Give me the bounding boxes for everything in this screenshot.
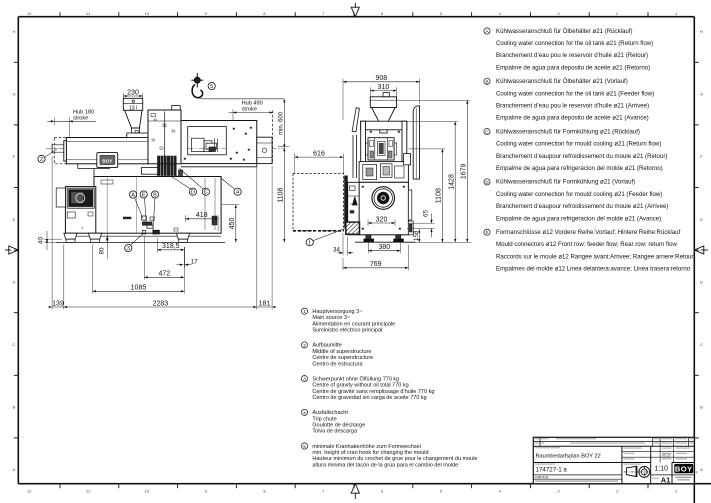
svg-text:181: 181 [259,300,271,307]
svg-text:Tolva de descarga: Tolva de descarga [312,429,358,435]
svg-text:450: 450 [229,218,236,230]
svg-text:Goulotte de décharge: Goulotte de décharge [312,423,365,429]
svg-text:310: 310 [378,84,390,91]
svg-text:318,5: 318,5 [162,243,180,250]
svg-text:C: C [13,342,16,347]
svg-text:altura minima del tacón de la: altura minima del tacón de la grúa para … [312,462,458,468]
svg-text:B: B [485,79,488,84]
svg-text:Schwerpunkt ohne Ölfüllung 770: Schwerpunkt ohne Ölfüllung 770 kg [312,375,399,382]
svg-text:Cooling water connection for m: Cooling water connection for mould cooli… [496,191,662,198]
svg-text:05.20: 05.20 [662,454,671,458]
svg-text:Empalme de agua para deposito: Empalme de agua para deposito de aceite … [496,64,650,71]
svg-text:Trip chute: Trip chute [312,416,336,422]
svg-text:380: 380 [379,244,391,251]
svg-text:C: C [700,342,703,347]
svg-text:Formanschlüsse ø12 Vordere Rei: Formanschlüsse ø12 Vordere Reihe:Vorlauf… [496,229,681,236]
svg-text:Kühlwasseranschluß für Formküh: Kühlwasseranschluß für Formkühlung ø21 (… [496,128,640,135]
svg-text:D: D [13,279,16,284]
svg-text:H: H [13,29,16,34]
svg-text:B: B [700,405,703,410]
svg-text:min. 600: min. 600 [279,111,285,135]
svg-text:Main source 3~: Main source 3~ [312,315,350,321]
svg-text:A: A [13,467,16,472]
svg-text:3: 3 [303,377,306,382]
svg-text:616: 616 [313,151,325,158]
svg-text:minimale Kranhakenhöhe zum For: minimale Kranhakenhöhe zum Formwechsel [312,444,421,450]
svg-text:Ausfallschacht: Ausfallschacht [312,410,348,416]
svg-text:1679: 1679 [461,163,468,179]
svg-text:17: 17 [191,259,198,266]
svg-text:5: 5 [210,84,213,90]
svg-text:Suministro eléctrico principal: Suministro eléctrico principal [312,328,382,334]
svg-text:Centre of gravity without oil: Centre of gravity without oil total 770 … [312,383,408,389]
svg-text:Branchement d’eaupour refroidi: Branchement d’eaupour refroidissement du… [496,203,668,210]
svg-text:Empalme de agua para deposito: Empalme de agua para deposito de aceite … [496,115,649,122]
svg-text:stroke: stroke [73,116,88,122]
svg-text:B: B [13,405,16,410]
svg-text:40: 40 [38,237,45,244]
svg-text:320: 320 [376,216,388,223]
svg-text:Alimentation en courant princi: Alimentation en courant principale [312,321,395,327]
svg-text:Hub 180: Hub 180 [73,110,94,116]
svg-text:174727-1 a: 174727-1 a [536,466,568,473]
svg-text:Hauptversorgung 3~: Hauptversorgung 3~ [312,309,362,315]
svg-text:Centro de gravedad sin carga d: Centro de gravedad sin carga de aceite 7… [312,395,426,401]
svg-text:Raccords sur le moule ø12 Rang: Raccords sur le moule ø12 Rangee avant:A… [496,253,693,260]
svg-text:230: 230 [127,89,139,96]
svg-text:472: 472 [159,271,171,278]
svg-text:E: E [700,217,703,222]
svg-text:1085: 1085 [131,285,147,292]
svg-text:Kühlwasseranschluß für Formküh: Kühlwasseranschluß für Formkühlung ø21 (… [496,179,635,186]
svg-text:A: A [700,467,703,472]
svg-text:BOY: BOY [675,465,693,474]
svg-text:Centre de superstructure: Centre de superstructure [312,355,373,361]
svg-text:Hauteur minimum du crochet de: Hauteur minimum du crochet de grue pour … [312,456,477,462]
svg-text:2283: 2283 [153,300,169,307]
svg-text:908: 908 [376,75,388,82]
svg-text:139: 139 [52,300,64,307]
svg-text:1: 1 [303,309,306,314]
svg-text:Kühlwasseranschluß für Ölbehäl: Kühlwasseranschluß für Ölbehälter ø21 (V… [496,78,628,85]
svg-text:Branchement d’eau pou le reser: Branchement d’eau pou le reservoir d’hui… [496,52,648,59]
svg-text:Empalmes del molde ø12 Linea d: Empalmes del molde ø12 Linea delantera:a… [496,266,691,273]
svg-text:4: 4 [303,410,306,415]
svg-text:BOY: BOY [102,158,112,163]
svg-text:A1: A1 [661,475,670,484]
svg-text:2: 2 [303,343,306,348]
svg-text:34: 34 [333,247,340,254]
svg-text:Cooling water connection for t: Cooling water connection for the oil tan… [496,40,653,47]
svg-text:Empalme de agua para refrigera: Empalme de agua para refrigeracion del m… [496,165,663,172]
svg-text:1: 1 [308,240,311,246]
svg-text:A: A [131,193,135,199]
svg-text:418: 418 [196,212,208,219]
svg-text:Cooling water connection for t: Cooling water connection for the oil tan… [496,90,654,97]
svg-text:769: 769 [370,261,382,268]
svg-text:Branchement d’eau pou le reser: Branchement d’eau pou le reservoir d’hui… [496,103,649,110]
svg-text:Centro de estructura: Centro de estructura [312,361,363,367]
svg-text:2: 2 [40,157,43,163]
svg-text:Branchement d’eaupour refroidi: Branchement d’eaupour refroidissement du… [496,153,667,160]
svg-text:5: 5 [303,444,306,449]
svg-text:min. height of cran hook for c: min. height of cran hook for changing th… [312,450,428,456]
svg-text:12: 12 [27,489,32,494]
svg-text:C: C [204,190,208,196]
svg-text:Aufbaumitte: Aufbaumitte [312,343,341,349]
svg-text:Centre de gravité sans remplis: Centre de gravité sans remplissage d’hui… [312,389,434,395]
svg-text:65: 65 [422,210,429,217]
svg-text:158: 158 [413,230,420,241]
svg-text:4: 4 [236,190,239,196]
svg-text:E: E [142,193,146,199]
svg-text:10: 10 [145,489,150,494]
svg-text:Middle of superstructure: Middle of superstructure [312,349,371,355]
svg-text:Raumbedarfsplan BOY 22: Raumbedarfsplan BOY 22 [536,453,601,459]
svg-text:D: D [191,190,195,196]
svg-text:1428: 1428 [448,174,455,190]
svg-text:Empalme de agua para refrigera: Empalme de agua para refrigeracion del m… [496,215,661,222]
svg-text:3: 3 [127,246,130,252]
svg-text:KRF/DA: KRF/DA [535,475,549,479]
svg-text:+: + [81,225,84,230]
svg-text:D: D [700,279,703,284]
svg-text:10: 10 [145,11,150,16]
svg-text:Kühlwasseranschluß für Ölbehäl: Kühlwasseranschluß für Ölbehälter ø21 (R… [496,28,633,35]
svg-text:1108: 1108 [436,188,443,203]
svg-text:Hub 490: Hub 490 [242,100,263,106]
svg-text:12: 12 [27,11,32,16]
svg-text:G: G [12,92,15,97]
svg-text:E: E [13,217,16,222]
svg-text:80: 80 [98,247,105,254]
svg-text:B: B [153,193,157,199]
svg-text:E: E [485,230,488,235]
svg-text:1:10: 1:10 [654,466,668,473]
svg-text:Cooling water connection for m: Cooling water connection for mould cooli… [496,141,661,148]
svg-text:Mould connectors ø12 Front row: Mould connectors ø12 Front row: feeder f… [496,241,677,248]
svg-text:1108: 1108 [278,187,285,202]
svg-text:H: H [700,29,703,34]
svg-text:13 l: 13 l [129,105,137,111]
svg-text:G: G [700,92,703,97]
svg-text:stroke: stroke [242,106,257,112]
